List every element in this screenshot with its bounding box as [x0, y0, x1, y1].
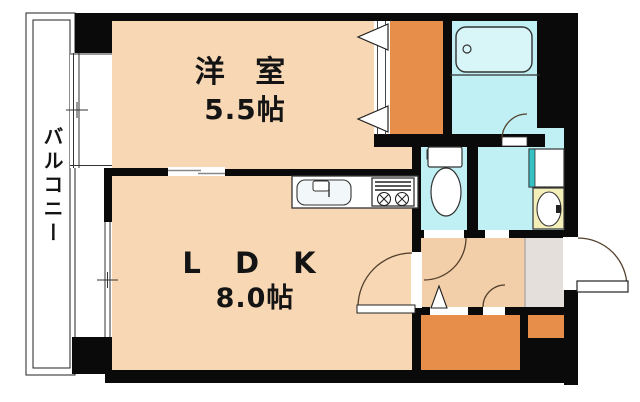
washbasin-icon [533, 188, 564, 229]
balcony [26, 13, 75, 375]
entrance-floor [525, 237, 565, 307]
closet-2 [421, 315, 520, 370]
entrance-door [577, 238, 628, 292]
floor-plan-drawing [0, 0, 640, 402]
western-room-floor [105, 21, 415, 176]
closet-1 [390, 21, 445, 135]
floor-plan: 洋 室 5.5帖 L D K 8.0帖 バルコニー [0, 0, 640, 402]
closet-3 [528, 313, 566, 338]
washing-machine-pan-icon [529, 149, 564, 187]
gas-stove-icon [372, 178, 414, 206]
bathtub-icon [450, 27, 540, 75]
kitchen-sink-icon [297, 180, 351, 205]
kitchen-counter [292, 176, 418, 208]
